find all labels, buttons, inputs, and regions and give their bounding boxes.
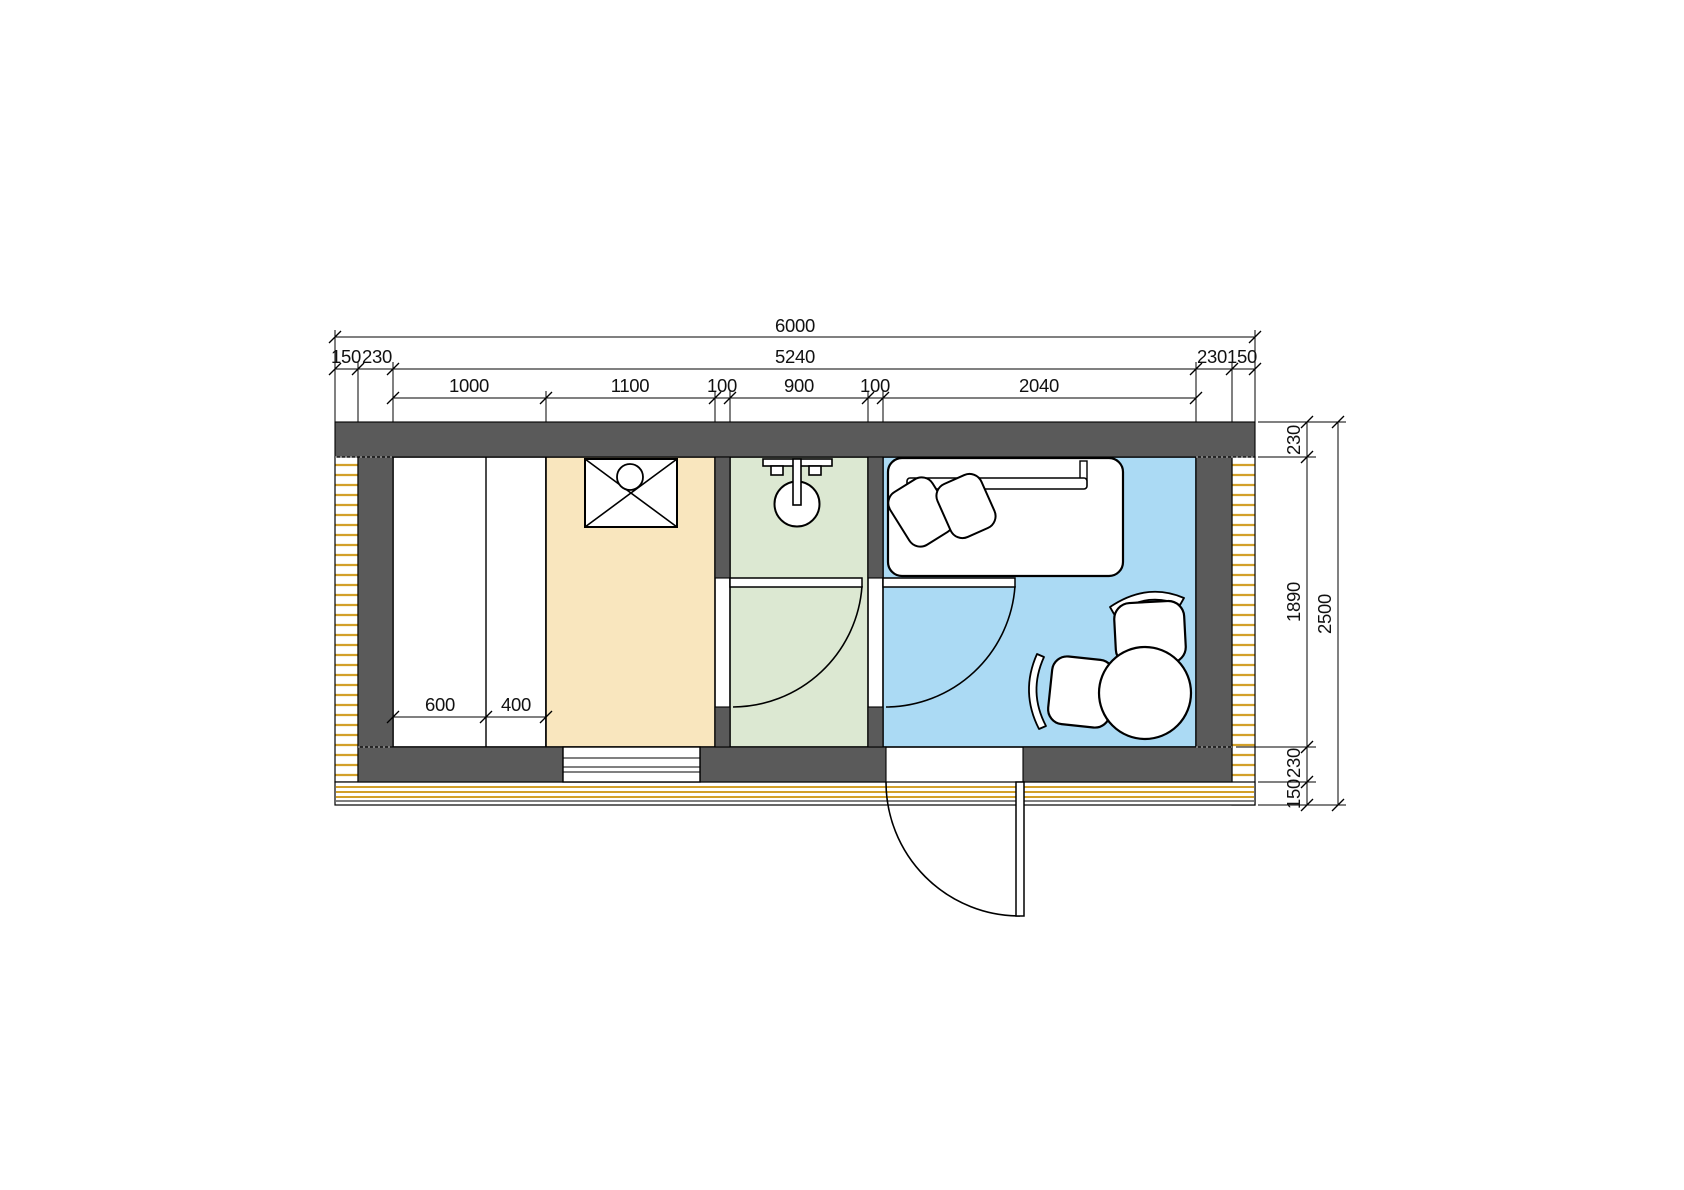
wall-left xyxy=(358,457,393,747)
door-leaf xyxy=(883,578,1015,587)
dim-left-deck: 150 xyxy=(331,346,361,367)
shower-tray xyxy=(585,459,677,527)
wall-bottom-a xyxy=(358,747,563,782)
blanket-fold xyxy=(1080,461,1087,480)
front-deck-terrace xyxy=(335,782,1255,805)
basin-tab xyxy=(771,466,783,475)
shower-drain-icon xyxy=(617,464,643,490)
wall-top xyxy=(335,422,1255,457)
wall-bottom-b xyxy=(700,747,886,782)
dim-side-bottom-wall: 230 xyxy=(1283,748,1304,778)
dim-side-interior: 1890 xyxy=(1283,582,1304,622)
dim-closet-400: 400 xyxy=(501,694,531,715)
door-leaf xyxy=(730,578,862,587)
dim-left-wall: 230 xyxy=(362,346,392,367)
dim-room-rest: 2040 xyxy=(1019,375,1059,396)
dim-closet-600: 600 xyxy=(425,694,455,715)
partition-shower-wash-top xyxy=(715,457,730,578)
dim-room-closet: 1000 xyxy=(449,375,489,396)
window-bottom-wall xyxy=(563,747,700,782)
wall-right xyxy=(1196,457,1232,747)
bed xyxy=(883,458,1123,576)
cladding-left xyxy=(335,457,358,782)
dim-side-deck: 150 xyxy=(1283,779,1304,809)
dim-overall-width: 6000 xyxy=(775,315,815,336)
basin-pipe xyxy=(793,459,801,505)
dim-partition-1: 100 xyxy=(707,375,737,396)
dim-room-shower: 1100 xyxy=(611,375,650,396)
entry-door-leaf xyxy=(1016,782,1024,916)
dim-right-deck: 150 xyxy=(1227,346,1257,367)
partition-shower-wash-bottom xyxy=(715,707,730,747)
round-table xyxy=(1099,647,1191,739)
basin-tab xyxy=(809,466,821,475)
partition-wash-rest-top xyxy=(868,457,883,578)
dim-side-top-wall: 230 xyxy=(1283,425,1304,455)
floor-plan-canvas: 6000 150 230 5240 230 150 1000 1100 100 … xyxy=(0,0,1684,1190)
wall-bottom-c xyxy=(1023,747,1232,782)
floor-plan-drawing: 6000 150 230 5240 230 150 1000 1100 100 … xyxy=(0,0,1684,1190)
dim-partition-2: 100 xyxy=(860,375,890,396)
dim-inner-width: 5240 xyxy=(775,346,815,367)
dim-overall-height: 2500 xyxy=(1314,594,1335,634)
cladding-right xyxy=(1232,457,1255,805)
dim-room-wash: 900 xyxy=(784,375,814,396)
dim-right-wall: 230 xyxy=(1197,346,1227,367)
partition-wash-rest-bottom xyxy=(868,707,883,747)
